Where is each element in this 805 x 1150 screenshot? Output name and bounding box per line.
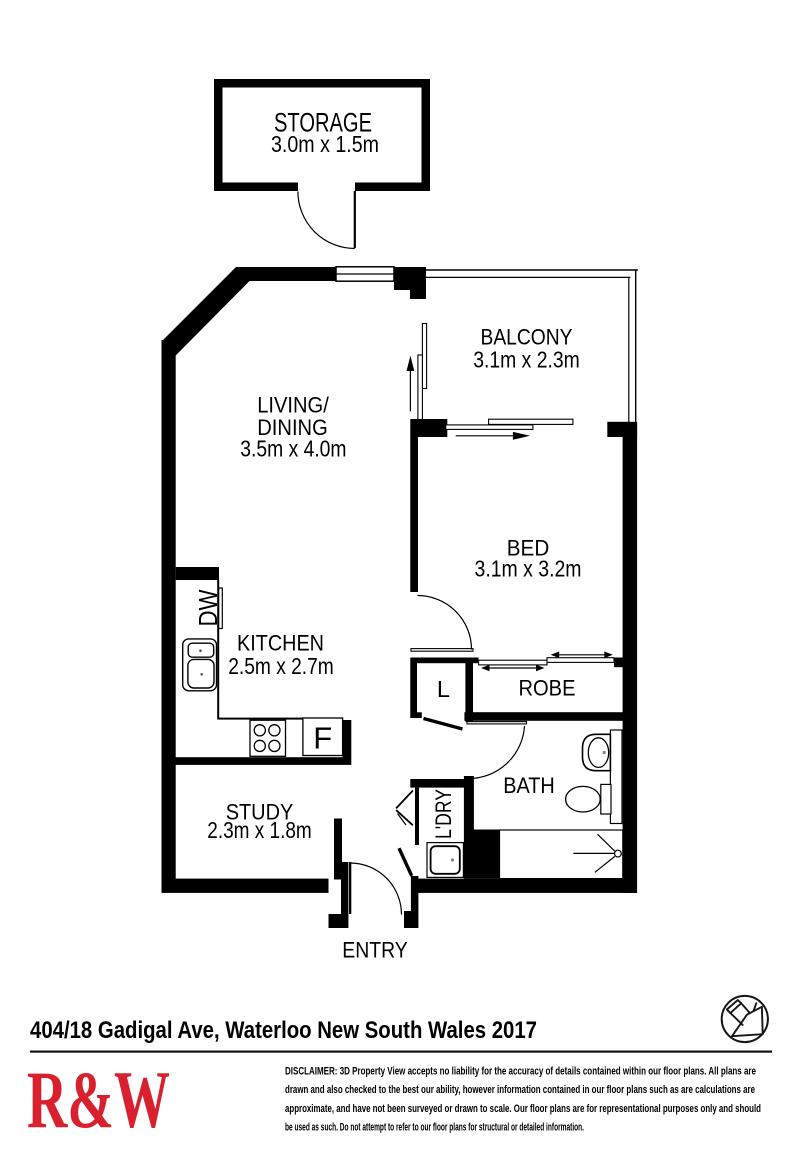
svg-text:be used as such. Do not attemp: be used as such. Do not attempt to refer… [285, 1122, 584, 1134]
svg-text:drawn and also checked to the: drawn and also checked to the best our a… [285, 1084, 755, 1096]
svg-text:R&W: R&W [27, 1054, 170, 1145]
svg-text:F: F [313, 721, 332, 756]
svg-text:404/18 Gadigal Ave, Waterloo N: 404/18 Gadigal Ave, Waterloo New South W… [30, 1017, 537, 1044]
svg-text:KITCHEN: KITCHEN [237, 631, 324, 656]
svg-text:DW: DW [193, 589, 223, 626]
svg-text:L: L [437, 676, 450, 702]
svg-text:2.5m x 2.7m: 2.5m x 2.7m [228, 653, 334, 679]
svg-text:BATH: BATH [503, 773, 555, 798]
svg-text:approximate, and have not been: approximate, and have not been surveyed … [285, 1103, 761, 1115]
svg-text:ROBE: ROBE [519, 676, 576, 701]
svg-text:3.5m x 4.0m: 3.5m x 4.0m [240, 435, 346, 461]
svg-text:DISCLAIMER: 3D Property View a: DISCLAIMER: 3D Property View accepts no … [285, 1066, 756, 1078]
svg-text:2.3m x 1.8m: 2.3m x 1.8m [207, 817, 312, 843]
svg-text:L'DRY: L'DRY [431, 789, 456, 839]
svg-text:3.1m x 3.2m: 3.1m x 3.2m [475, 556, 582, 582]
svg-text:LIVING/: LIVING/ [257, 392, 329, 417]
svg-text:3.1m x 2.3m: 3.1m x 2.3m [473, 347, 580, 373]
svg-text:3.0m x 1.5m: 3.0m x 1.5m [271, 131, 379, 157]
svg-text:ENTRY: ENTRY [342, 938, 408, 963]
